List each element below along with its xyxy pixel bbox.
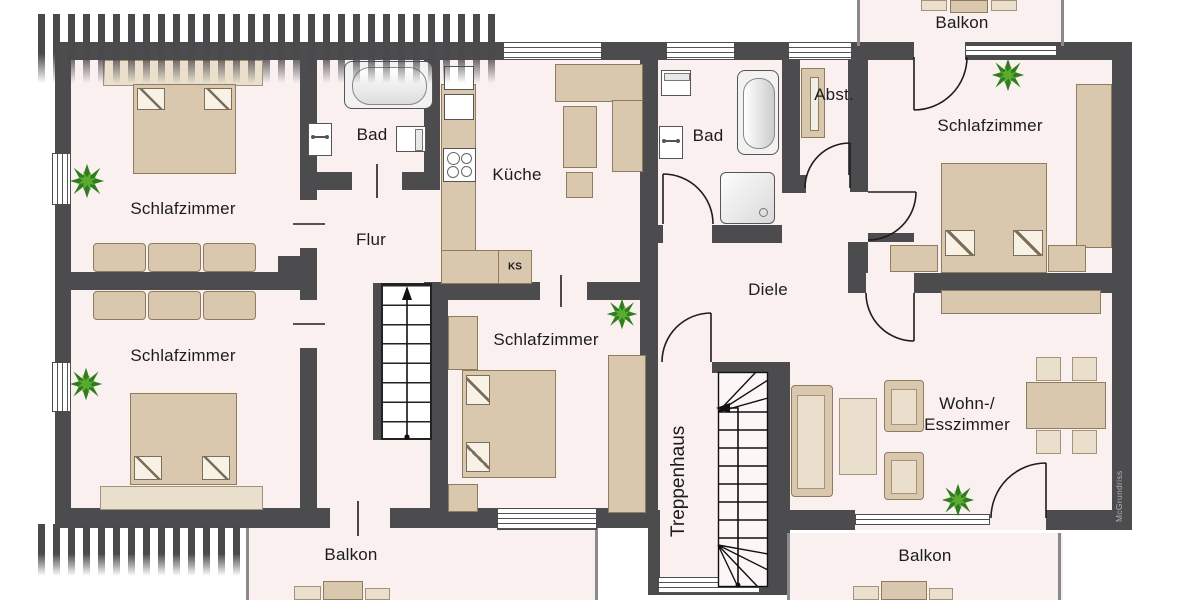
door-gap-bad-left <box>352 172 402 190</box>
roof-slope-hatch-bottom <box>38 524 246 578</box>
nightstand <box>1048 245 1086 272</box>
pillow <box>134 456 162 480</box>
toilet <box>396 126 426 152</box>
pillow <box>466 375 490 405</box>
dining-chair <box>1036 357 1061 381</box>
sofa <box>791 385 833 497</box>
treppenhaus-top-wall <box>712 362 768 373</box>
bed <box>941 163 1047 273</box>
dining-chair <box>1036 430 1061 454</box>
pillow <box>466 442 490 472</box>
door-gap-balkon-tr <box>914 42 965 60</box>
plant-icon <box>68 162 106 200</box>
kitchen-table <box>563 106 597 168</box>
pillow <box>1013 230 1043 256</box>
seat-cushion <box>148 291 201 320</box>
balkon-top-right-rail <box>1061 0 1064 46</box>
wardrobe <box>448 484 478 512</box>
room-label-schlafzimmer-top-left: Schlafzimmer <box>130 199 235 219</box>
room-label-schlafzimmer-right: Schlafzimmer <box>937 116 1042 136</box>
floor-plan: Schlafzimmer Schlafzimmer Schlafzimmer S… <box>0 0 1200 600</box>
window <box>788 42 852 60</box>
door-gap-abst <box>806 175 850 193</box>
wohnzimmer-label-line1: Wohn-/ <box>924 393 1010 414</box>
seat-cushion <box>203 291 256 320</box>
dining-chair <box>1072 430 1097 454</box>
dining-table <box>1026 382 1106 429</box>
pillow <box>202 456 230 480</box>
balkon-br-left-rail <box>787 533 790 600</box>
plant-icon <box>940 482 976 518</box>
room-label-kueche: Küche <box>492 165 541 185</box>
balkon-bl-right-rail <box>595 528 598 600</box>
kitchen-bench-side <box>612 100 643 172</box>
balcony-table <box>950 0 988 13</box>
flur-staircase <box>381 283 432 440</box>
door-gap-entrance <box>660 362 712 373</box>
sideboard <box>941 290 1101 314</box>
wardrobe <box>1076 84 1112 248</box>
balcony-chair <box>853 586 879 600</box>
watermark: McGrundriss <box>1114 450 1124 522</box>
balcony-table <box>323 581 363 600</box>
door-gap-balkon-bl <box>330 508 390 528</box>
kitchen-counter-corner <box>441 250 501 284</box>
room-label-flur: Flur <box>356 230 386 250</box>
room-label-balkon-bottom-left: Balkon <box>324 545 377 565</box>
wall-nub <box>278 256 300 274</box>
balcony-chair <box>365 588 390 600</box>
balkon-bl-left-rail <box>246 528 249 600</box>
balkon-br-right-rail <box>1058 533 1061 600</box>
window <box>658 577 760 594</box>
plant-icon <box>990 57 1026 93</box>
door-gap-kitchen <box>540 282 587 300</box>
seat-cushion <box>93 243 146 272</box>
roof-slope-hatch-top <box>38 14 498 86</box>
bedroom-divider-wall <box>55 272 300 290</box>
stove <box>443 148 476 182</box>
door-gap-bedroom1 <box>300 200 317 248</box>
pillow <box>204 88 232 110</box>
stool <box>566 172 593 198</box>
wohnzimmer-label-line2: Esszimmer <box>924 414 1010 435</box>
window <box>503 42 602 60</box>
washbasin <box>308 123 332 156</box>
coffee-table <box>839 398 877 475</box>
bathtub <box>737 70 779 155</box>
room-label-balkon-bottom-right: Balkon <box>898 546 951 566</box>
sink <box>444 94 474 120</box>
room-label-diele: Diele <box>748 280 788 300</box>
room-label-bad-left: Bad <box>357 125 388 145</box>
balcony-chair <box>921 0 947 11</box>
fridge-label: KS <box>508 262 522 273</box>
pillow <box>945 230 975 256</box>
toilet <box>661 70 691 96</box>
pillow <box>137 88 165 110</box>
balcony-door-window <box>965 45 1057 56</box>
plant-icon <box>605 297 639 331</box>
balcony-chair <box>991 0 1017 11</box>
dining-chair <box>1072 357 1097 381</box>
door-gap-wohnzimmer <box>866 273 914 293</box>
room-label-balkon-top: Balkon <box>935 13 988 33</box>
balkon-top-left-rail <box>857 0 860 46</box>
shower <box>720 172 775 224</box>
room-label-treppenhaus: Treppenhaus <box>668 392 690 537</box>
footboard-shelf <box>100 486 263 510</box>
room-label-schlafzimmer-center: Schlafzimmer <box>493 330 598 350</box>
flur-bedroom-wall <box>300 42 317 510</box>
door-gap-bedroom-right <box>848 192 868 242</box>
room-label-bad-right: Bad <box>693 126 724 146</box>
plant-icon <box>68 366 104 402</box>
balcony-table <box>881 581 927 600</box>
seat-cushion <box>148 243 201 272</box>
tall-cupboard <box>608 355 646 513</box>
armchair <box>884 452 924 500</box>
door-gap-bedroom2 <box>300 300 317 348</box>
wardrobe <box>448 316 478 370</box>
room-label-schlafzimmer-bottom-left: Schlafzimmer <box>130 346 235 366</box>
bedroom-center-left-wall <box>430 300 448 510</box>
door-stub-wall <box>868 233 914 242</box>
room-label-wohn-esszimmer: Wohn-/ Esszimmer <box>924 393 1010 435</box>
kitchen-bench-top <box>555 64 643 102</box>
bad-abst-divider-wall <box>782 42 800 193</box>
balcony-chair <box>294 586 321 600</box>
door-gap-bad-right <box>663 225 712 243</box>
door-gap-balkon-br <box>988 510 1046 530</box>
window <box>497 508 597 530</box>
seat-cushion <box>203 243 256 272</box>
room-label-abst: Abst. <box>814 85 854 105</box>
window <box>666 42 735 60</box>
washbasin <box>659 126 683 159</box>
nightstand <box>890 245 938 272</box>
seat-cushion <box>93 291 146 320</box>
armchair <box>884 380 924 432</box>
flur-stair-stringer <box>373 283 381 440</box>
balcony-chair <box>929 588 953 600</box>
